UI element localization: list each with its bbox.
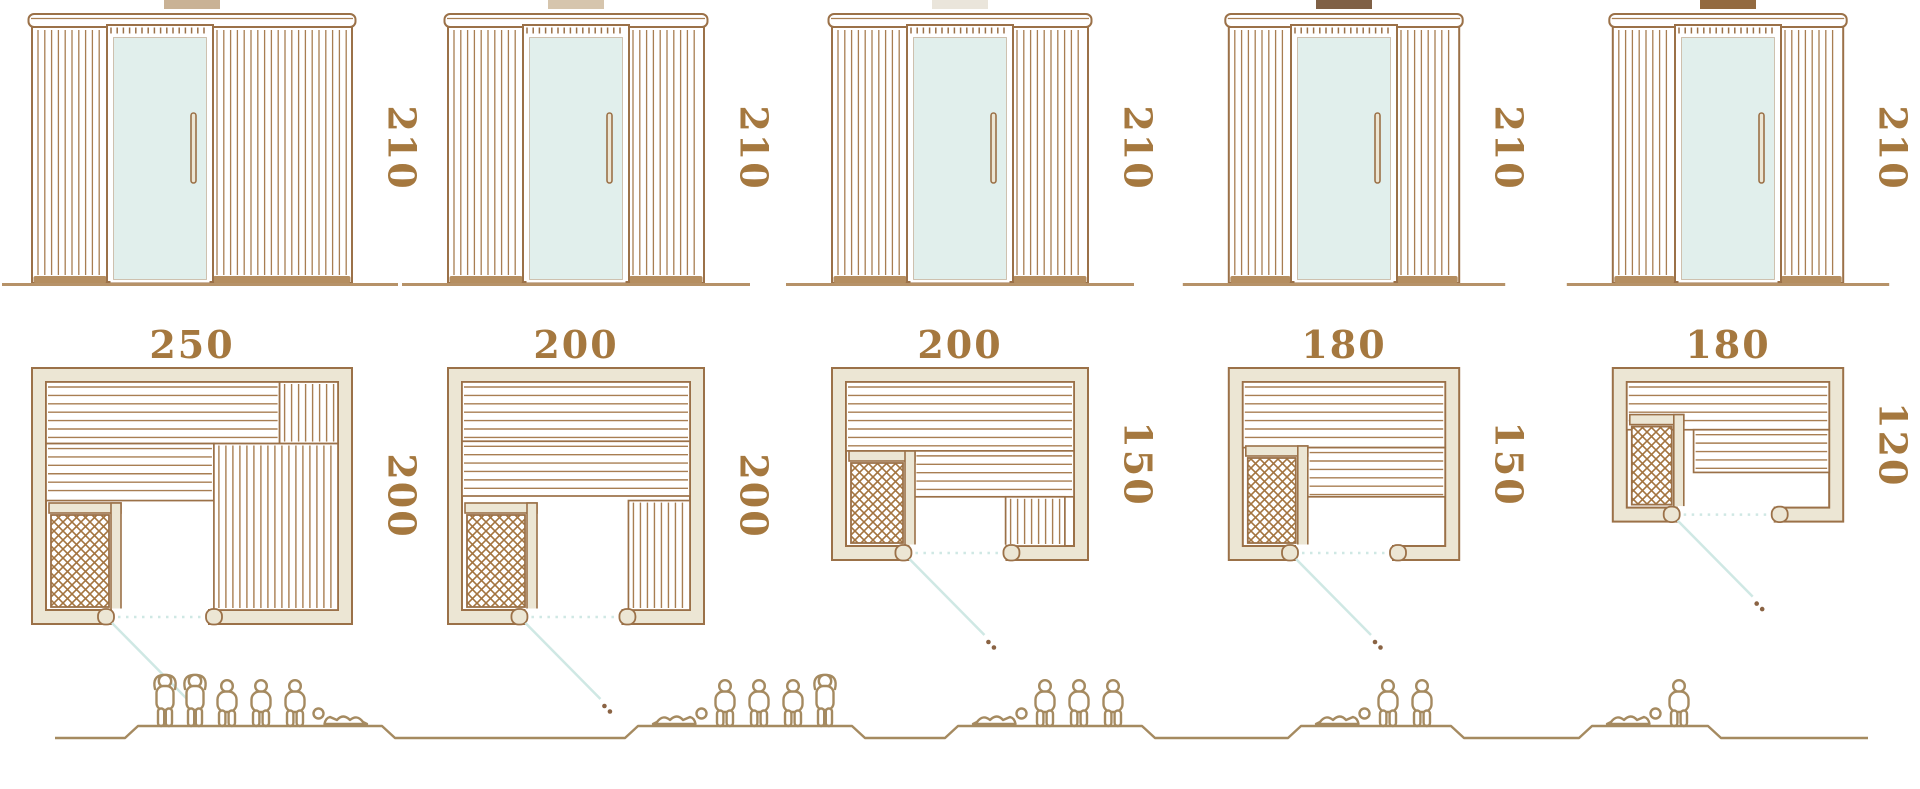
door-handle-dot <box>986 640 991 645</box>
floor-plan-view: 180150 <box>1229 322 1532 650</box>
model-column-4: 210180150 <box>1183 0 1532 726</box>
person-lying-icon <box>653 709 707 725</box>
floor-plan-view: 180120 <box>1613 322 1916 611</box>
door-handle-dot <box>1378 645 1383 650</box>
person-standing-icon <box>814 675 835 726</box>
person-lying-icon <box>314 709 368 725</box>
wood-sample-swatch <box>932 0 988 9</box>
heater <box>465 503 537 610</box>
wood-sample-swatch <box>1316 0 1372 9</box>
person-sitting-icon <box>750 680 769 726</box>
person-sitting-icon <box>1670 680 1689 726</box>
door-handle-dot <box>992 645 997 650</box>
wood-sample-swatch <box>548 0 604 9</box>
capacity-group <box>1316 680 1432 726</box>
glass-door <box>107 25 213 282</box>
capacity-group <box>154 675 367 726</box>
elevation-view: 210 <box>402 14 777 285</box>
floor-plan-view: 250200 <box>32 322 425 714</box>
height-dimension-label: 210 <box>380 105 425 190</box>
person-sitting-icon <box>784 680 803 726</box>
depth-dimension-label: 150 <box>1116 421 1161 506</box>
floor-plan-view: 200150 <box>832 322 1161 650</box>
capacity-group <box>1607 680 1689 726</box>
elevation-view: 210 <box>786 14 1161 285</box>
person-lying-icon <box>1607 709 1661 725</box>
height-dimension-label: 210 <box>732 105 777 190</box>
model-column-1: 210250200 <box>2 0 425 726</box>
width-dimension-label: 180 <box>1685 322 1770 367</box>
depth-dimension-label: 150 <box>1487 421 1532 506</box>
elevation-view: 210 <box>1567 14 1916 285</box>
door-handle-dot <box>1754 601 1759 606</box>
person-sitting-icon <box>1036 680 1055 726</box>
heater <box>1246 446 1308 546</box>
door-swing-line <box>1678 521 1765 612</box>
person-lying-icon <box>973 709 1027 725</box>
person-sitting-icon <box>1413 680 1432 726</box>
glass-door <box>1291 25 1397 282</box>
width-dimension-label: 180 <box>1301 322 1386 367</box>
wood-sample-swatch <box>164 0 220 9</box>
door-handle-dot <box>1373 640 1378 645</box>
person-standing-icon <box>184 675 205 726</box>
height-dimension-label: 210 <box>1871 105 1916 190</box>
width-dimension-label: 200 <box>533 322 618 367</box>
person-sitting-icon <box>218 680 237 726</box>
model-column-5: 210180120 <box>1567 0 1916 726</box>
width-dimension-label: 250 <box>149 322 234 367</box>
height-dimension-label: 210 <box>1116 105 1161 190</box>
glass-door <box>523 25 629 282</box>
door-handle <box>991 113 996 183</box>
person-sitting-icon <box>286 680 305 726</box>
depth-dimension-label: 200 <box>380 453 425 538</box>
elevation-view: 210 <box>1183 14 1532 285</box>
wood-sample-swatch <box>1700 0 1756 9</box>
height-dimension-label: 210 <box>1487 105 1532 190</box>
person-sitting-icon <box>716 680 735 726</box>
heater <box>1630 415 1684 508</box>
person-sitting-icon <box>252 680 271 726</box>
door-handle <box>191 113 196 183</box>
door-handle <box>1375 113 1380 183</box>
door-handle <box>1759 113 1764 183</box>
capacity-baseline <box>55 726 1868 738</box>
heater <box>849 451 915 546</box>
door-swing-line <box>1296 559 1383 650</box>
door-handle-dot <box>602 704 607 709</box>
width-dimension-label: 200 <box>917 322 1002 367</box>
person-sitting-icon <box>1379 680 1398 726</box>
person-lying-icon <box>1316 709 1370 725</box>
glass-door <box>907 25 1013 282</box>
door-handle-dot <box>1760 607 1765 612</box>
elevation-view: 210 <box>2 14 425 285</box>
depth-dimension-label: 200 <box>732 453 777 538</box>
door-swing-line <box>525 623 612 714</box>
diagram-canvas: 210250200 210200200 <box>0 0 1920 789</box>
capacity-group <box>973 680 1123 726</box>
glass-door <box>1675 25 1781 282</box>
door-handle-dot <box>608 709 613 714</box>
model-column-2: 210200200 <box>402 0 836 726</box>
model-column-3: 210200150 <box>786 0 1161 726</box>
floor-plan-view: 200200 <box>448 322 777 714</box>
sauna-size-diagram: 210250200 210200200 <box>0 0 1920 789</box>
depth-dimension-label: 120 <box>1871 402 1916 487</box>
door-swing-line <box>909 559 996 650</box>
person-sitting-icon <box>1070 680 1089 726</box>
door-handle <box>607 113 612 183</box>
person-sitting-icon <box>1104 680 1123 726</box>
capacity-group <box>653 675 836 726</box>
